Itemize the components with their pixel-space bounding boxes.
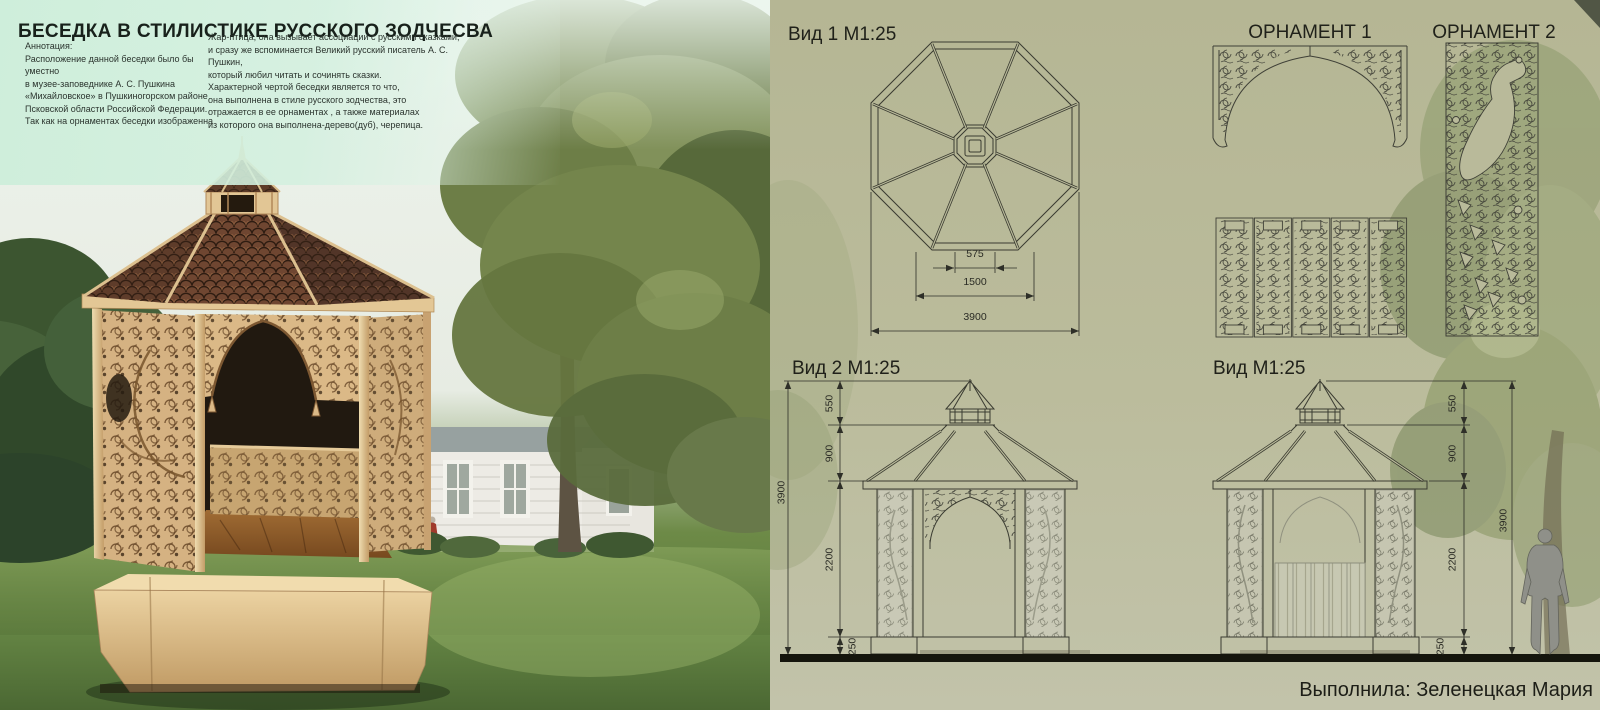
dim-side-base: 250 <box>1435 625 1448 669</box>
dim-front-roof: 900 <box>824 432 837 476</box>
dim-side-wall: 2200 <box>1447 538 1460 582</box>
dim-front-total: 3900 <box>776 471 789 515</box>
ornament2-panel-drawing <box>1446 43 1538 336</box>
dim-inner: 1500 <box>925 276 1025 288</box>
side-view-label: Вид М1:25 <box>1213 358 1305 380</box>
gazebo-back-railing <box>210 446 360 518</box>
dim-front-wall: 2200 <box>824 538 837 582</box>
ornament2-label: ОРНАМЕНТ 2 <box>1414 22 1574 44</box>
drawing-board: Вид 1 М1:25 ОРНАМЕНТ 1 ОРНАМЕНТ 2 Вид 2 … <box>770 0 1600 710</box>
ornament1-panels-drawing <box>1216 218 1407 337</box>
top-view-label: Вид 1 М1:25 <box>788 24 896 46</box>
dim-lantern: 575 <box>925 248 1025 260</box>
dim-side-roof: 900 <box>1447 432 1460 476</box>
gazebo-render <box>82 136 450 710</box>
top-view-drawing <box>871 42 1079 336</box>
photo-panel: БЕСЕДКА В СТИЛИСТИКЕ РУССКОГО ЗОДЧЕСВА А… <box>0 0 770 710</box>
interior-railing <box>1275 563 1365 637</box>
ornament1-arch-drawing <box>1213 46 1407 147</box>
gazebo-carved-panel-left <box>97 310 199 572</box>
author-credit: Выполнила: Зеленецкая Мария <box>1299 679 1593 702</box>
dim-front-cupola: 550 <box>824 382 837 426</box>
technical-drawings <box>770 0 1600 710</box>
gazebo-carved-panel-right <box>365 314 431 552</box>
gazebo-roof <box>84 212 434 305</box>
dim-side-total: 3900 <box>1498 499 1511 543</box>
front-view-label: Вид 2 М1:25 <box>792 358 900 380</box>
dim-front-base: 250 <box>847 625 860 669</box>
presentation-board: БЕСЕДКА В СТИЛИСТИКЕ РУССКОГО ЗОДЧЕСВА А… <box>0 0 1600 710</box>
dim-plan-total: 3900 <box>925 311 1025 323</box>
annotation-left: Аннотация: Расположение данной беседки б… <box>25 40 215 128</box>
ornament1-label: ОРНАМЕНТ 1 <box>1230 22 1390 44</box>
dim-side-cupola: 550 <box>1447 382 1460 426</box>
annotation-right: Жар-птица, она вызывает ассоциации с рус… <box>208 31 468 131</box>
